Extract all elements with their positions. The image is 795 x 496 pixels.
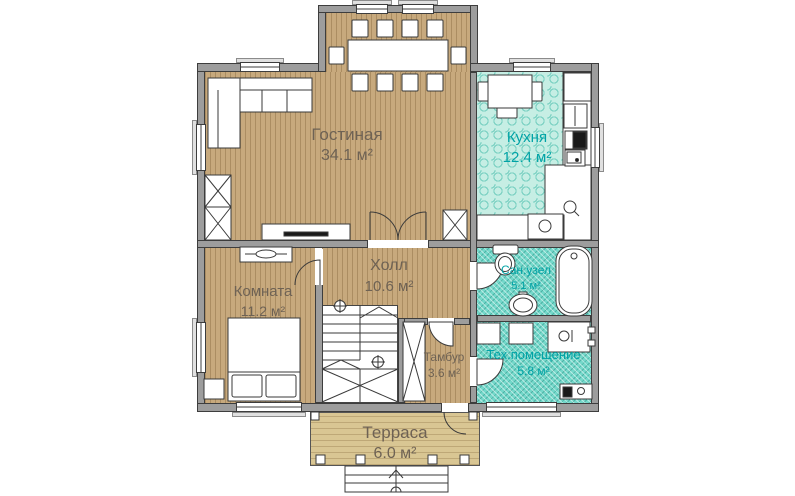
wardrobe-living <box>205 175 231 240</box>
washer-2 <box>509 323 533 344</box>
bathroom-fixtures <box>477 245 592 316</box>
double-door <box>370 212 426 240</box>
tambour-wardrobe <box>403 322 425 401</box>
corner-sofa <box>208 78 312 148</box>
pillow <box>266 375 296 397</box>
terrace-door-arc <box>444 412 466 434</box>
pillow <box>232 375 262 397</box>
bathtub <box>556 246 592 316</box>
tv <box>284 232 328 236</box>
tambour-door <box>429 322 453 346</box>
tech-door <box>477 359 503 385</box>
washer-1 <box>477 323 500 344</box>
dining-table <box>348 40 448 71</box>
bedroom-furniture <box>204 247 320 401</box>
cabinet-living-right <box>443 210 467 240</box>
kitchen-table-set <box>478 75 542 118</box>
furniture-layer <box>0 0 795 496</box>
floor-plan: Гостиная 34.1 м² Кухня 12.4 м² Холл 10.6… <box>0 0 795 496</box>
kitchen-table <box>488 75 532 108</box>
tv-stand <box>262 224 350 240</box>
staircase <box>322 299 398 402</box>
bedside-table <box>204 379 224 399</box>
fridge <box>564 73 591 101</box>
bedroom-door <box>295 260 320 285</box>
dining-set <box>329 20 466 91</box>
terrace-detail <box>311 412 477 492</box>
tech-room-equipment <box>477 322 595 399</box>
dishwasher <box>528 214 563 239</box>
